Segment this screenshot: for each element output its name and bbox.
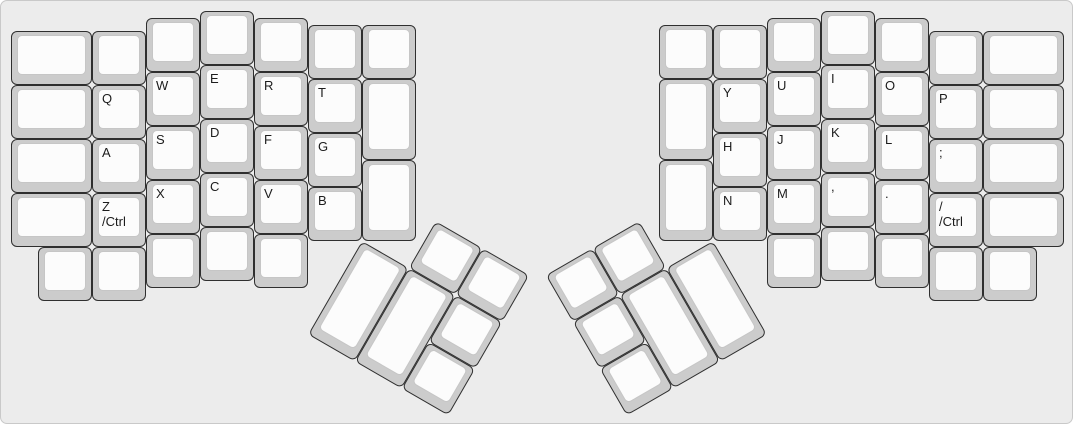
keycap-top: G [314, 137, 356, 177]
key-l-c2r0[interactable] [146, 18, 200, 72]
keycap-top [368, 29, 410, 69]
key-l-c6r2[interactable] [362, 160, 416, 241]
key-label: Z /Ctrl [102, 199, 138, 229]
key-l-b3[interactable] [200, 227, 254, 281]
keycap-top: C [206, 177, 248, 217]
key-period[interactable]: . [875, 180, 929, 234]
key-l-b2[interactable] [146, 234, 200, 288]
key-r-c6r0[interactable] [983, 31, 1064, 85]
key-r-c1r0[interactable] [713, 25, 767, 79]
keys-container: QAZ /CtrlWSXEDCRFVTGBYHNUJMIK,OL.P;/ /Ct… [1, 1, 1072, 423]
key-label: J [777, 132, 813, 147]
key-label: W [156, 78, 192, 93]
keycap-top: Z /Ctrl [98, 197, 140, 237]
key-r[interactable]: R [254, 72, 308, 126]
keycap-top [206, 231, 248, 271]
key-label: . [885, 186, 921, 201]
keycap-top: W [152, 76, 194, 116]
key-r-c6r1[interactable] [983, 85, 1064, 139]
keycap-top [773, 22, 815, 62]
key-label: O [885, 78, 921, 93]
keycap-top: S [152, 130, 194, 170]
keycap-top [600, 227, 656, 283]
keycap-top: ; [935, 143, 977, 183]
key-y[interactable]: Y [713, 79, 767, 133]
key-comma[interactable]: , [821, 173, 875, 227]
keycap-top [665, 29, 707, 69]
keycap-top: U [773, 76, 815, 116]
keycap-top: Q [98, 89, 140, 129]
keycap-top [17, 35, 86, 75]
key-r-c5r0[interactable] [929, 31, 983, 85]
key-a[interactable]: A [92, 139, 146, 193]
key-l-c4r0[interactable] [254, 18, 308, 72]
key-l-b4[interactable] [254, 234, 308, 288]
keycap-top [989, 89, 1058, 129]
keycap-top: H [719, 137, 761, 177]
key-q[interactable]: Q [92, 85, 146, 139]
keycap-top [881, 238, 923, 278]
keycap-top [260, 238, 302, 278]
keycap-top [368, 164, 410, 231]
key-label: , [831, 179, 867, 194]
key-g[interactable]: G [308, 133, 362, 187]
key-slash-ctrl[interactable]: / /Ctrl [929, 193, 983, 247]
key-label: R [264, 78, 300, 93]
keycap-top: F [260, 130, 302, 170]
key-label [488, 258, 519, 276]
keycap-top: I [827, 69, 869, 109]
key-r-b4[interactable] [983, 247, 1037, 301]
key-l-c3r0[interactable] [200, 11, 254, 65]
keycap-top: . [881, 184, 923, 224]
key-l-c6r0[interactable] [362, 25, 416, 79]
keycap-top [152, 238, 194, 278]
keycap-top: O [881, 76, 923, 116]
keycap-top [17, 197, 86, 237]
keycap-top: X [152, 184, 194, 224]
keycap-top [314, 29, 356, 69]
key-label: K [831, 125, 867, 140]
keycap-top [773, 238, 815, 278]
key-label: I [831, 71, 867, 86]
keycap-top: T [314, 83, 356, 123]
key-l-c6r1[interactable] [362, 79, 416, 160]
key-label: F [264, 132, 300, 147]
keycap-top [935, 35, 977, 75]
key-r-c6r2[interactable] [983, 139, 1064, 193]
keycap-top: N [719, 191, 761, 231]
keycap-top [152, 22, 194, 62]
keycap-top: M [773, 184, 815, 224]
keycap-top [989, 197, 1058, 237]
keycap-top [989, 143, 1058, 183]
key-label: P [939, 91, 975, 106]
keycap-top: / /Ctrl [935, 197, 977, 237]
keycap-top: P [935, 89, 977, 129]
key-l-b0[interactable] [38, 247, 92, 301]
key-label [441, 231, 472, 249]
key-label: V [264, 186, 300, 201]
key-label: S [156, 132, 192, 147]
keycap-top [989, 35, 1058, 75]
key-r-c3r0[interactable] [821, 11, 875, 65]
keycap-top [665, 164, 707, 231]
key-r-b3[interactable] [929, 247, 983, 301]
keycap-top: R [260, 76, 302, 116]
keycap-top [368, 83, 410, 150]
key-p[interactable]: P [929, 85, 983, 139]
keycap-top [935, 251, 977, 291]
key-f[interactable]: F [254, 126, 308, 180]
keycap-top [466, 254, 522, 310]
key-r-c0r2[interactable] [659, 160, 713, 241]
key-u[interactable]: U [767, 72, 821, 126]
keycap-top: L [881, 130, 923, 170]
key-n[interactable]: N [713, 187, 767, 241]
key-r-b2[interactable] [875, 234, 929, 288]
key-label [604, 230, 635, 248]
key-label: Q [102, 91, 138, 106]
key-x[interactable]: X [146, 180, 200, 234]
key-s[interactable]: S [146, 126, 200, 180]
key-r-c4r0[interactable] [875, 18, 929, 72]
key-h[interactable]: H [713, 133, 767, 187]
keycap-top: Y [719, 83, 761, 123]
key-l-c5r0[interactable] [308, 25, 362, 79]
key-d[interactable]: D [200, 119, 254, 173]
keycap-top: J [773, 130, 815, 170]
key-label: / /Ctrl [939, 199, 975, 229]
key-l-c0r1[interactable] [11, 85, 92, 139]
key-label: U [777, 78, 813, 93]
key-label: C [210, 179, 246, 194]
key-semicolon[interactable]: ; [929, 139, 983, 193]
keycap-top [44, 251, 86, 291]
key-m[interactable]: M [767, 180, 821, 234]
keyboard-panel: QAZ /CtrlWSXEDCRFVTGBYHNUJMIK,OL.P;/ /Ct… [0, 0, 1073, 424]
key-r-c6r3[interactable] [983, 193, 1064, 247]
key-label [368, 251, 399, 269]
keycap-top [989, 251, 1031, 291]
keycap-top [206, 15, 248, 55]
key-l-c0r3[interactable] [11, 193, 92, 247]
key-label: A [102, 145, 138, 160]
key-j[interactable]: J [767, 126, 821, 180]
key-label: Y [723, 85, 759, 100]
key-r-c0r0[interactable] [659, 25, 713, 79]
key-label: L [885, 132, 921, 147]
keycap-top [17, 89, 86, 129]
keycap-top: K [827, 123, 869, 163]
key-label: H [723, 139, 759, 154]
key-t[interactable]: T [308, 79, 362, 133]
key-z-ctrl[interactable]: Z /Ctrl [92, 193, 146, 247]
key-label [678, 250, 709, 268]
key-r-c0r1[interactable] [659, 79, 713, 160]
key-r-b0[interactable] [767, 234, 821, 288]
key-label: ; [939, 145, 975, 160]
key-label: B [318, 193, 354, 208]
keycap-top: A [98, 143, 140, 183]
keycap-top: D [206, 123, 248, 163]
key-w[interactable]: W [146, 72, 200, 126]
key-e[interactable]: E [200, 65, 254, 119]
keycap-top [17, 143, 86, 183]
key-label: X [156, 186, 192, 201]
key-b[interactable]: B [308, 187, 362, 241]
key-o[interactable]: O [875, 72, 929, 126]
keycap-top: , [827, 177, 869, 217]
keycap-top [881, 22, 923, 62]
keycap-top [260, 22, 302, 62]
key-label: N [723, 193, 759, 208]
key-k[interactable]: K [821, 119, 875, 173]
key-v[interactable]: V [254, 180, 308, 234]
keycap-top: E [206, 69, 248, 109]
key-l-c0r2[interactable] [11, 139, 92, 193]
key-i[interactable]: I [821, 65, 875, 119]
key-label [557, 257, 588, 275]
keycap-top: V [260, 184, 302, 224]
keycap-top: B [314, 191, 356, 231]
key-label: E [210, 71, 246, 86]
keycap-top [719, 29, 761, 69]
key-label: D [210, 125, 246, 140]
key-label: T [318, 85, 354, 100]
key-label: G [318, 139, 354, 154]
key-c[interactable]: C [200, 173, 254, 227]
keycap-top [98, 251, 140, 291]
key-l-b1[interactable] [92, 247, 146, 301]
keycap-top [827, 15, 869, 55]
key-l-c0r0[interactable] [11, 31, 92, 85]
key-r-b1[interactable] [821, 227, 875, 281]
key-r-c2r0[interactable] [767, 18, 821, 72]
key-l-c1r0[interactable] [92, 31, 146, 85]
keycap-top [98, 35, 140, 75]
key-label: M [777, 186, 813, 201]
key-l[interactable]: L [875, 126, 929, 180]
keycap-top [827, 231, 869, 271]
keycap-top [665, 83, 707, 150]
